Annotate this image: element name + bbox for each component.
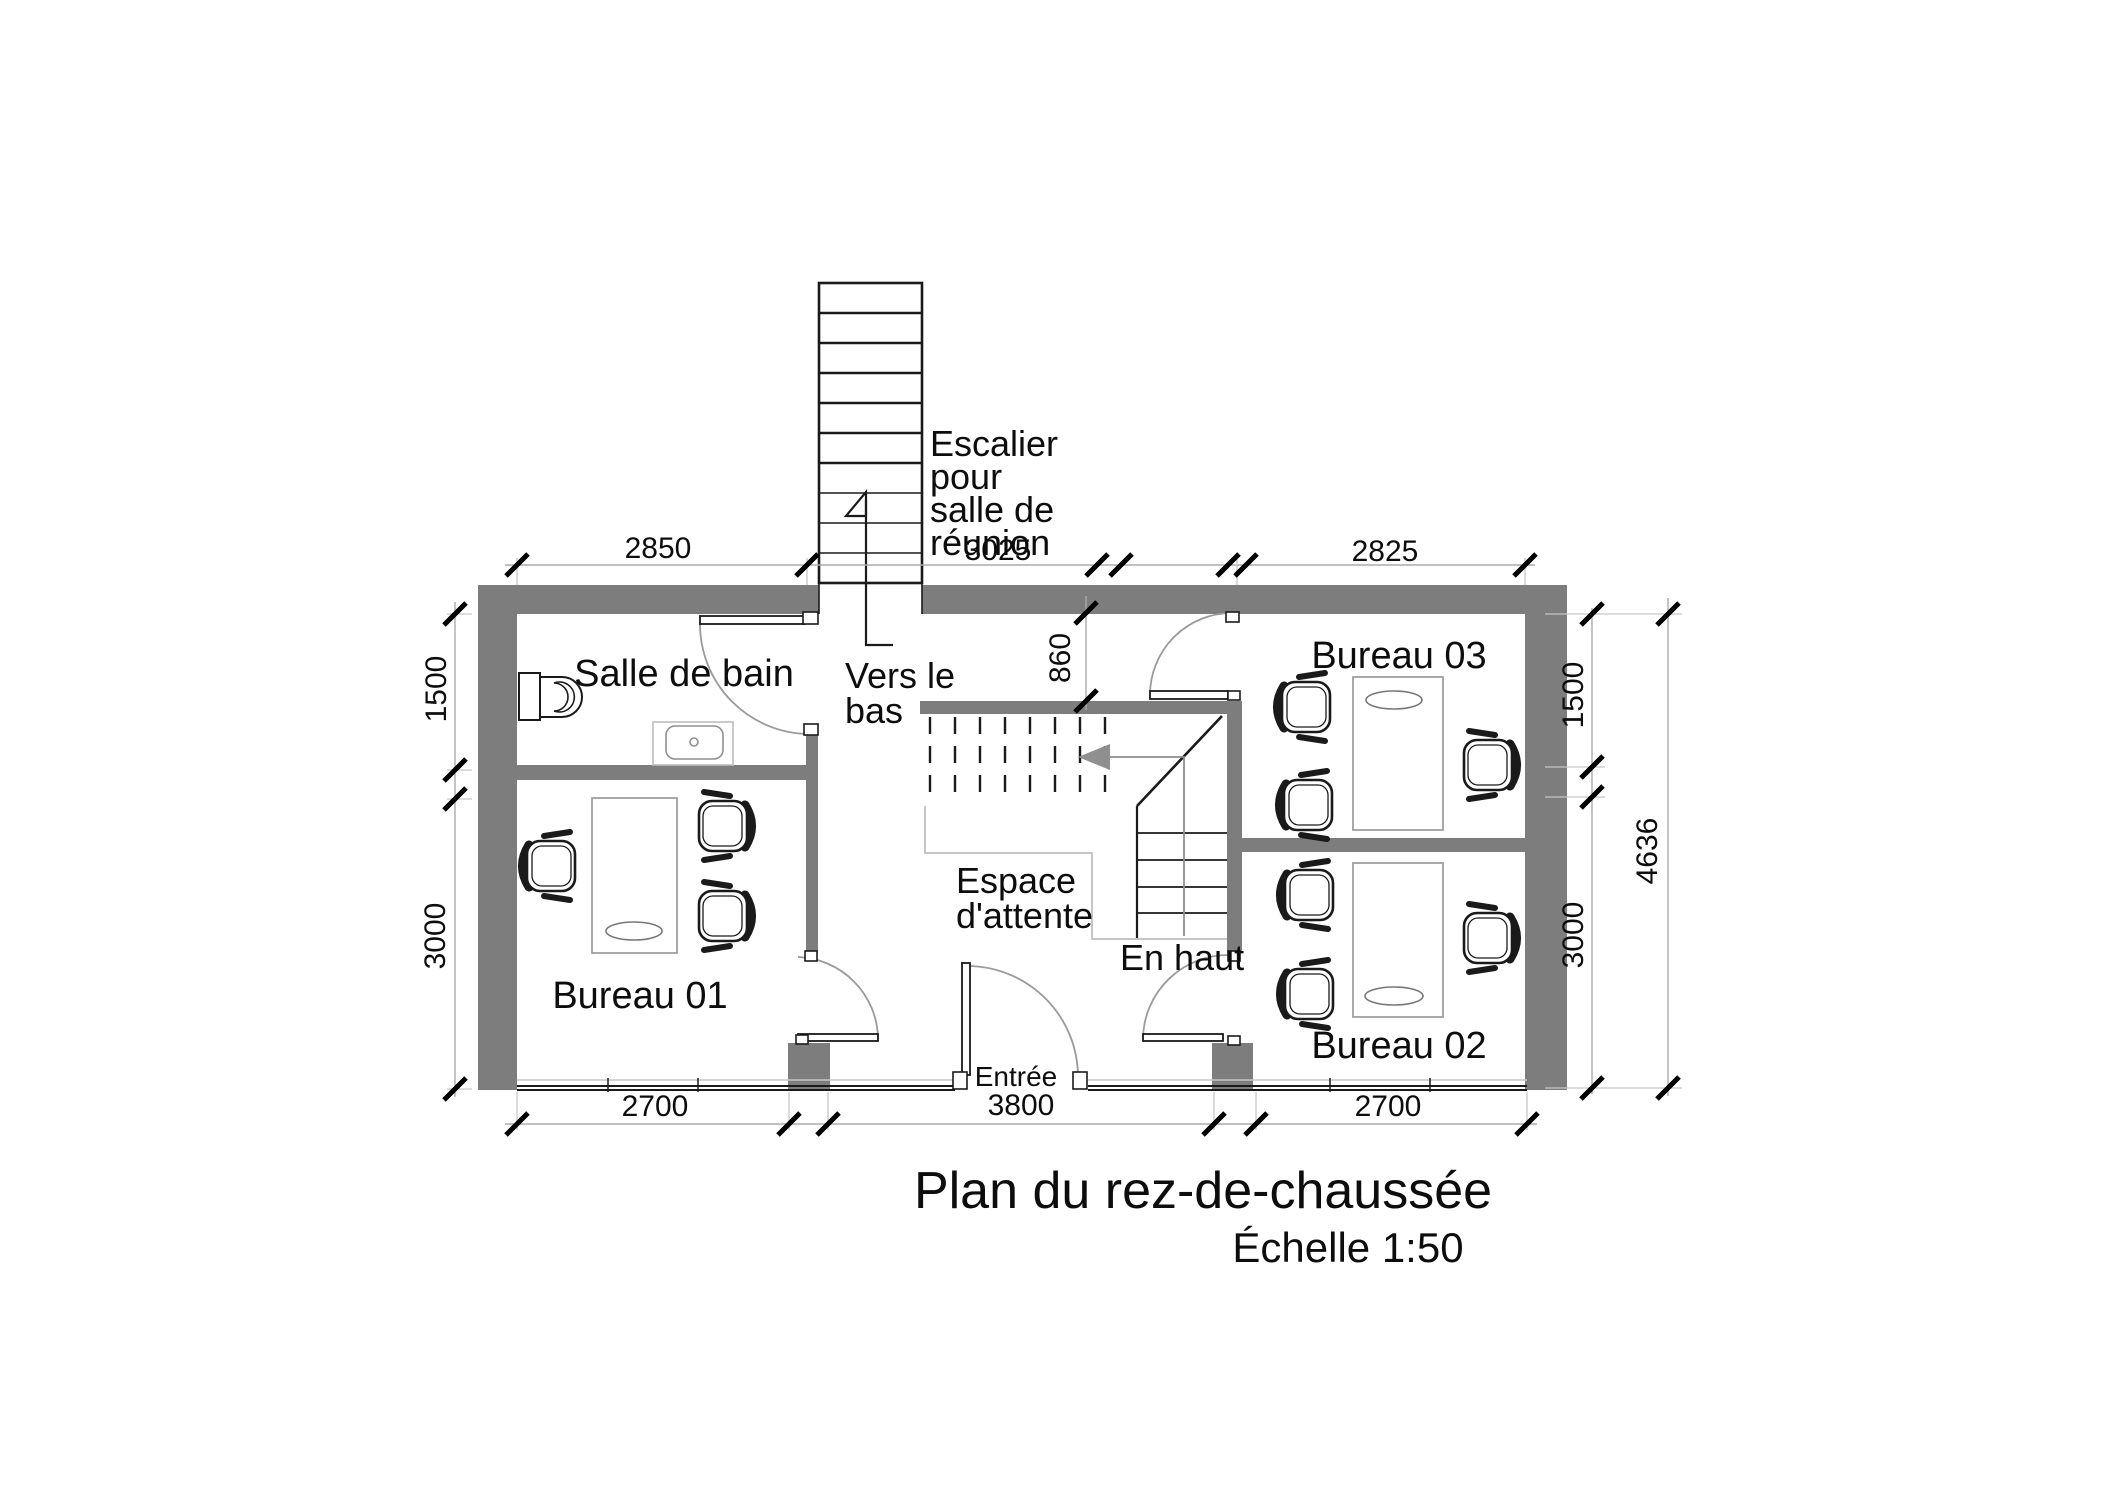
dim-right-overall: 4636 xyxy=(1631,818,1664,885)
desk-office2 xyxy=(1353,863,1443,1017)
office-chair xyxy=(1464,731,1517,799)
office-chair xyxy=(1281,960,1334,1028)
stair-up-arrow xyxy=(1078,744,1110,770)
label-office3: Bureau 03 xyxy=(1311,635,1486,677)
label-waiting-2: d'attente xyxy=(956,895,1093,936)
door-office1 xyxy=(796,951,878,1044)
dim-top-3: 2825 xyxy=(1352,535,1419,568)
office-chair xyxy=(523,832,576,900)
door-office3 xyxy=(1150,612,1240,700)
desk-office3 xyxy=(1353,677,1443,830)
column-entry-left xyxy=(788,1043,830,1090)
label-down-2: bas xyxy=(845,690,903,731)
stair-up-path xyxy=(1094,757,1184,936)
dim-stair-width: 860 xyxy=(1044,633,1077,683)
wall-left xyxy=(478,585,517,1090)
dim-bottom-right: 2700 xyxy=(1355,1090,1422,1123)
office-chair xyxy=(1281,861,1334,929)
label-bathroom: Salle de bain xyxy=(574,653,794,695)
dim-top-1: 2850 xyxy=(625,532,692,565)
wall-stair-right xyxy=(1227,701,1242,953)
office-chair xyxy=(699,792,752,860)
dim-right-upper: 1500 xyxy=(1557,662,1590,729)
floor-plan-drawing: Salle de bain Bureau 01 Bureau 03 Bureau… xyxy=(0,0,2117,1497)
wall-bathroom-south xyxy=(517,765,818,780)
dim-top-2: 3025 xyxy=(965,534,1032,567)
desk-office1 xyxy=(592,798,677,953)
exterior-stair xyxy=(819,283,922,645)
dim-bottom-left: 2700 xyxy=(622,1090,689,1123)
column-entry-right xyxy=(1212,1043,1253,1090)
sink xyxy=(653,722,733,765)
wall-offices-partition xyxy=(1242,838,1525,852)
dim-left-upper: 1500 xyxy=(420,656,453,723)
wall-top-left xyxy=(478,585,819,614)
wall-top-right xyxy=(922,585,1567,614)
page-title: Plan du rez-de-chaussée xyxy=(914,1162,1492,1220)
label-up: En haut xyxy=(1120,937,1244,978)
title-block: Plan du rez-de-chaussée Échelle 1:50 xyxy=(914,1162,1492,1271)
wall-middle xyxy=(806,735,818,953)
office-chair xyxy=(1464,904,1517,972)
toilet xyxy=(519,673,582,720)
office-chair xyxy=(1280,771,1333,839)
label-entrance: Entrée xyxy=(975,1061,1058,1092)
floor-plan-page: Salle de bain Bureau 01 Bureau 03 Bureau… xyxy=(0,0,2117,1497)
dim-right-lower: 3000 xyxy=(1557,902,1590,969)
office-chair xyxy=(699,882,752,950)
label-office2: Bureau 02 xyxy=(1311,1025,1486,1067)
wall-right xyxy=(1525,585,1567,1090)
dim-left-lower: 3000 xyxy=(419,903,452,970)
label-office1: Bureau 01 xyxy=(552,975,727,1017)
office-chair xyxy=(1278,673,1331,741)
dim-bottom-center: 3800 xyxy=(988,1089,1055,1122)
page-scale: Échelle 1:50 xyxy=(1232,1224,1463,1271)
